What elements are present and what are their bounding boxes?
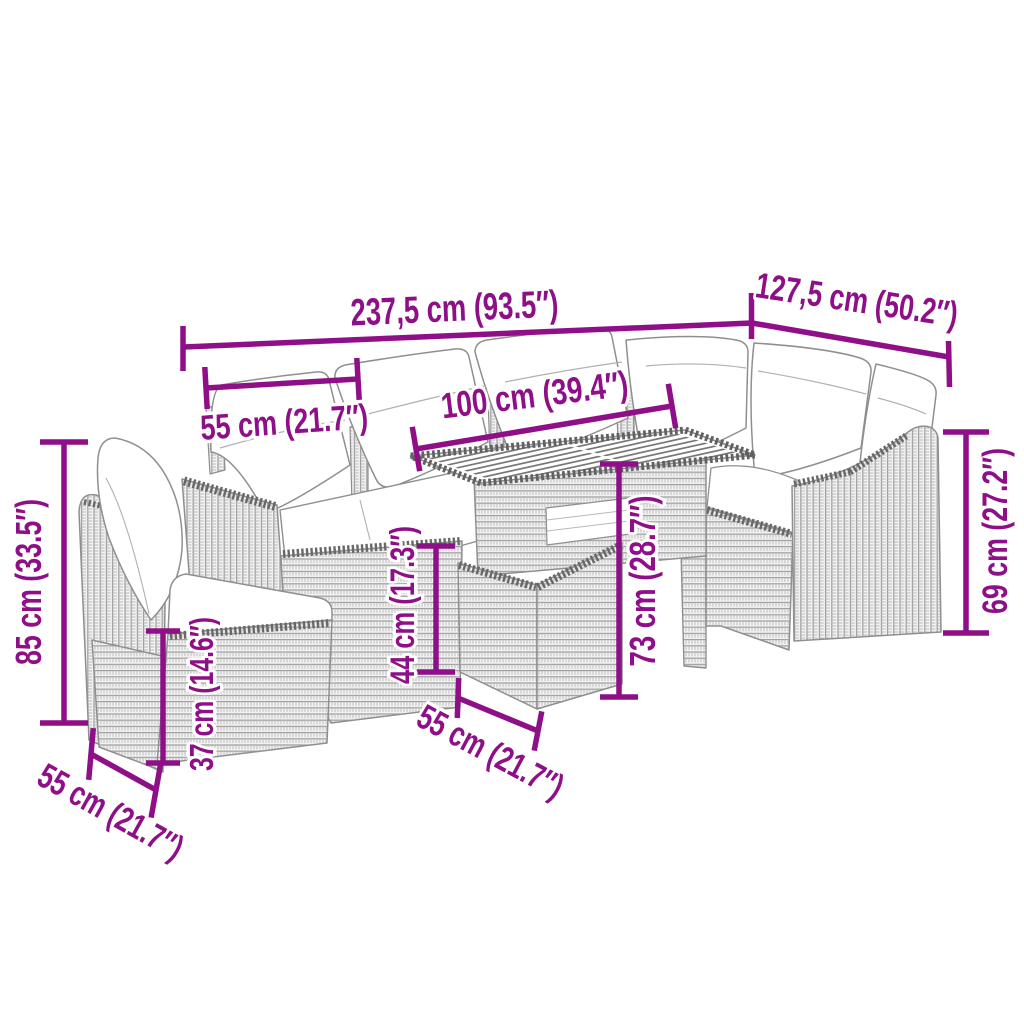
svg-text:73 cm (28.7″): 73 cm (28.7″) [622,496,663,667]
svg-text:85 cm (33.5″): 85 cm (33.5″) [8,499,49,665]
svg-text:44 cm (17.3″): 44 cm (17.3″) [384,526,422,684]
svg-text:69 cm (27.2″): 69 cm (27.2″) [976,448,1015,614]
svg-text:37 cm (14.6″): 37 cm (14.6″) [183,617,220,771]
